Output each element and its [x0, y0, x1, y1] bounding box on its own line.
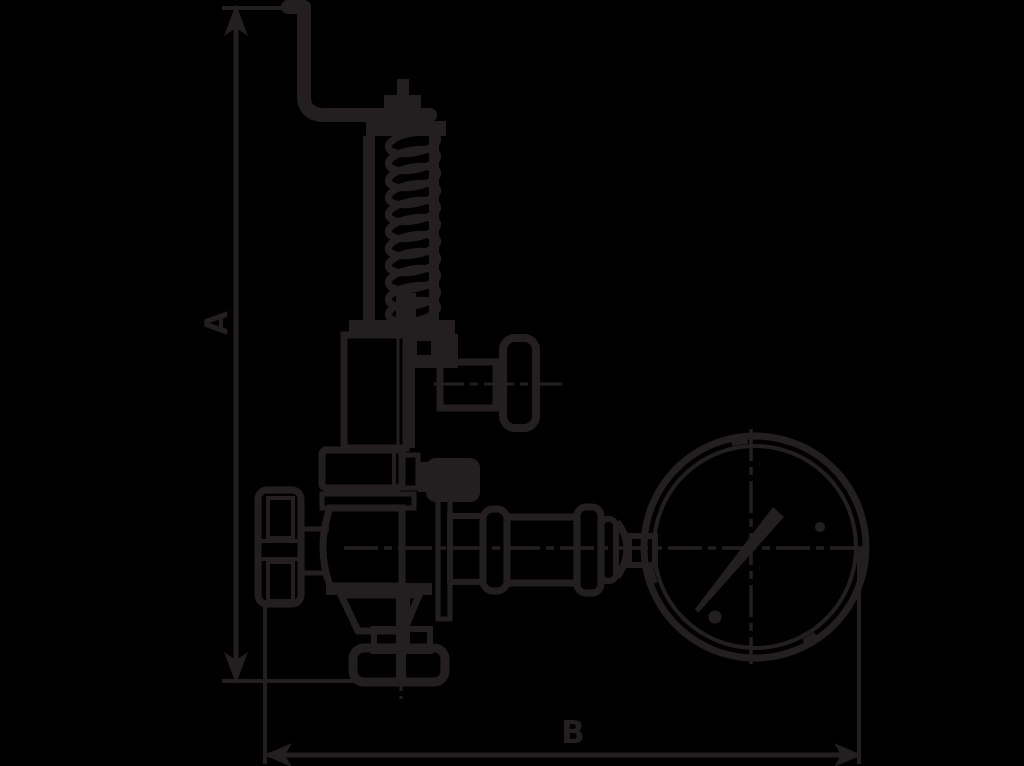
gauge-needle	[695, 507, 784, 613]
connection-cylinder	[507, 517, 577, 583]
union-collar	[402, 455, 418, 488]
union-nut-body	[322, 450, 402, 488]
dimension-label-b: B	[561, 715, 585, 751]
bonnet-side-block-window	[417, 341, 431, 355]
dimension-a: A	[199, 4, 362, 684]
union-nut	[322, 450, 430, 492]
yoke-rod-left	[363, 136, 375, 324]
handwheel-inner-bottom	[268, 562, 293, 601]
connection-ring-1	[483, 509, 507, 591]
drawing-svg: A B	[0, 0, 1024, 766]
gauge-screw-upper	[815, 522, 825, 532]
handwheel-inner-top	[268, 498, 293, 538]
inlet-flange-divider	[396, 652, 406, 679]
valve-dimension-drawing: A B	[0, 0, 1024, 766]
body-center-stem	[396, 588, 410, 650]
inlet-flange	[353, 648, 445, 699]
stem-nut	[384, 95, 421, 108]
handwheel	[258, 490, 329, 604]
gauge-connection	[483, 507, 655, 593]
stem-tip	[397, 79, 409, 96]
body-transition-block	[426, 458, 480, 502]
connection-nut	[577, 507, 601, 593]
gauge-screw-lower	[709, 611, 722, 624]
connection-ring-2	[601, 519, 616, 581]
dimension-label-a: A	[199, 311, 235, 335]
